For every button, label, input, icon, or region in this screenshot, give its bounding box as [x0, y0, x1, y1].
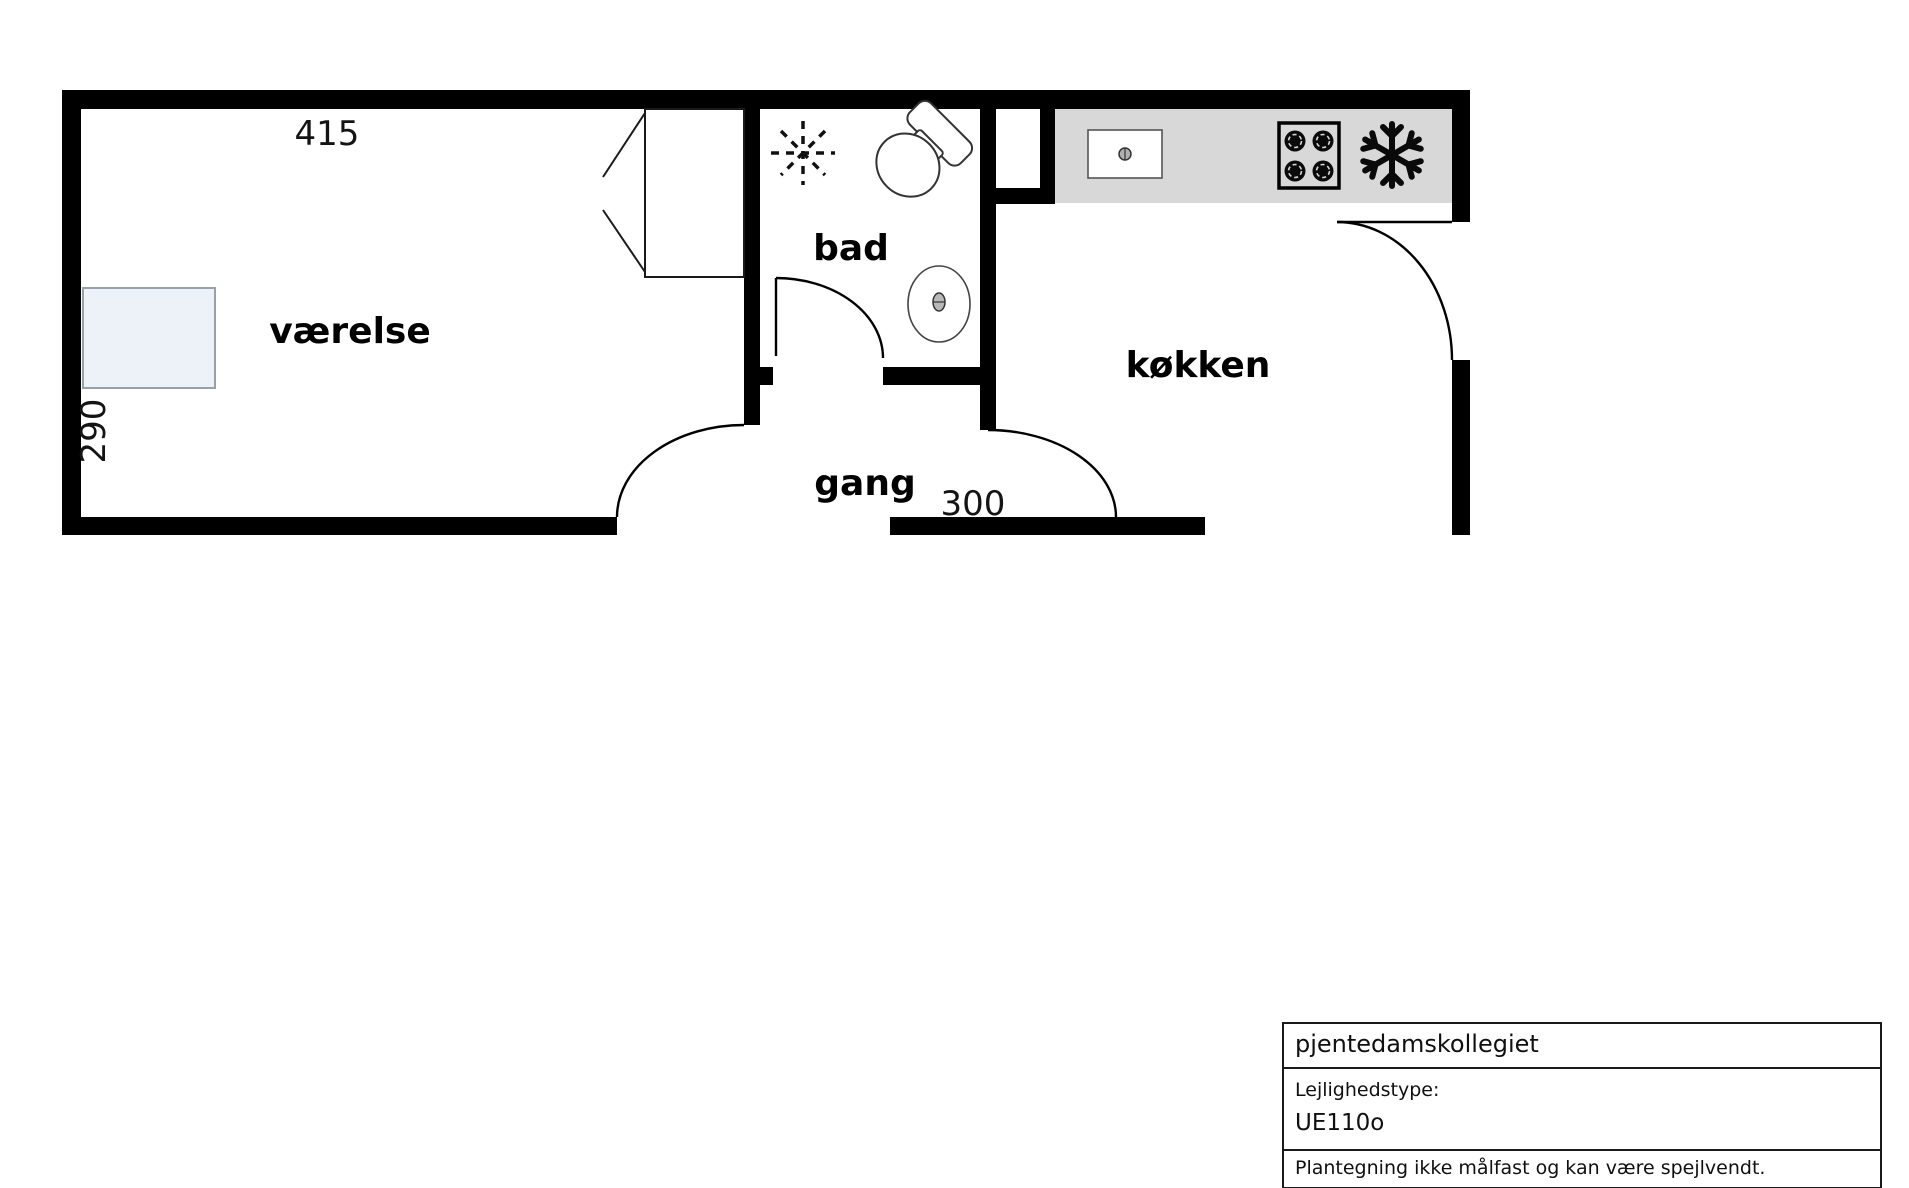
label-room-width: 415: [295, 114, 360, 154]
label-gang: gang: [814, 463, 915, 504]
wall-left: [62, 90, 81, 535]
apartment-type-label: Lejlighedstype:: [1284, 1069, 1880, 1101]
wall-right-upper: [1452, 90, 1470, 222]
label-kitchen-width: 300: [941, 484, 1006, 524]
wall-top: [62, 90, 1470, 109]
kitchen-door: [1337, 222, 1452, 360]
wall-bad-bottom-stub: [744, 367, 773, 385]
hall-door-right: [988, 430, 1116, 517]
label-vaerelse: værelse: [269, 311, 431, 352]
wall-bad-right: [980, 109, 996, 430]
wall-bottom-right: [890, 517, 1205, 535]
info-title: pjentedamskollegiet: [1284, 1024, 1880, 1069]
wall-bottom-left: [62, 517, 617, 535]
disclaimer-note: Plantegning ikke målfast og kan være spe…: [1284, 1149, 1880, 1187]
hall-door-right-arc: [988, 430, 1116, 517]
hall-door-left: [617, 425, 744, 517]
bath-sink-icon: [908, 266, 970, 342]
page: 415 290 300 værelse bad gang køkken pjen…: [0, 0, 1909, 1188]
label-bad: bad: [813, 228, 889, 269]
apartment-type-value: UE110o: [1284, 1101, 1880, 1149]
floor-plan: 415 290 300 værelse bad gang køkken: [0, 0, 1909, 1188]
shower-icon: [771, 121, 835, 185]
wall-right-lower: [1452, 360, 1470, 535]
wall-shaft-right: [1040, 109, 1055, 204]
wall-bad-bottom-right: [883, 367, 980, 385]
hall-door-left-arc: [617, 425, 744, 517]
kitchen-sink-icon: [1088, 130, 1162, 178]
label-koekken: køkken: [1126, 345, 1271, 386]
wardrobe: [603, 109, 744, 277]
table: [83, 288, 215, 388]
bathroom-door: [776, 278, 883, 358]
kitchen-door-arc: [1337, 222, 1452, 360]
info-box: pjentedamskollegiet Lejlighedstype: UE11…: [1282, 1022, 1882, 1188]
toilet-icon: [861, 97, 976, 212]
label-room-depth: 290: [74, 399, 114, 464]
stove-icon: [1279, 123, 1339, 188]
bathroom-door-arc: [776, 278, 883, 358]
